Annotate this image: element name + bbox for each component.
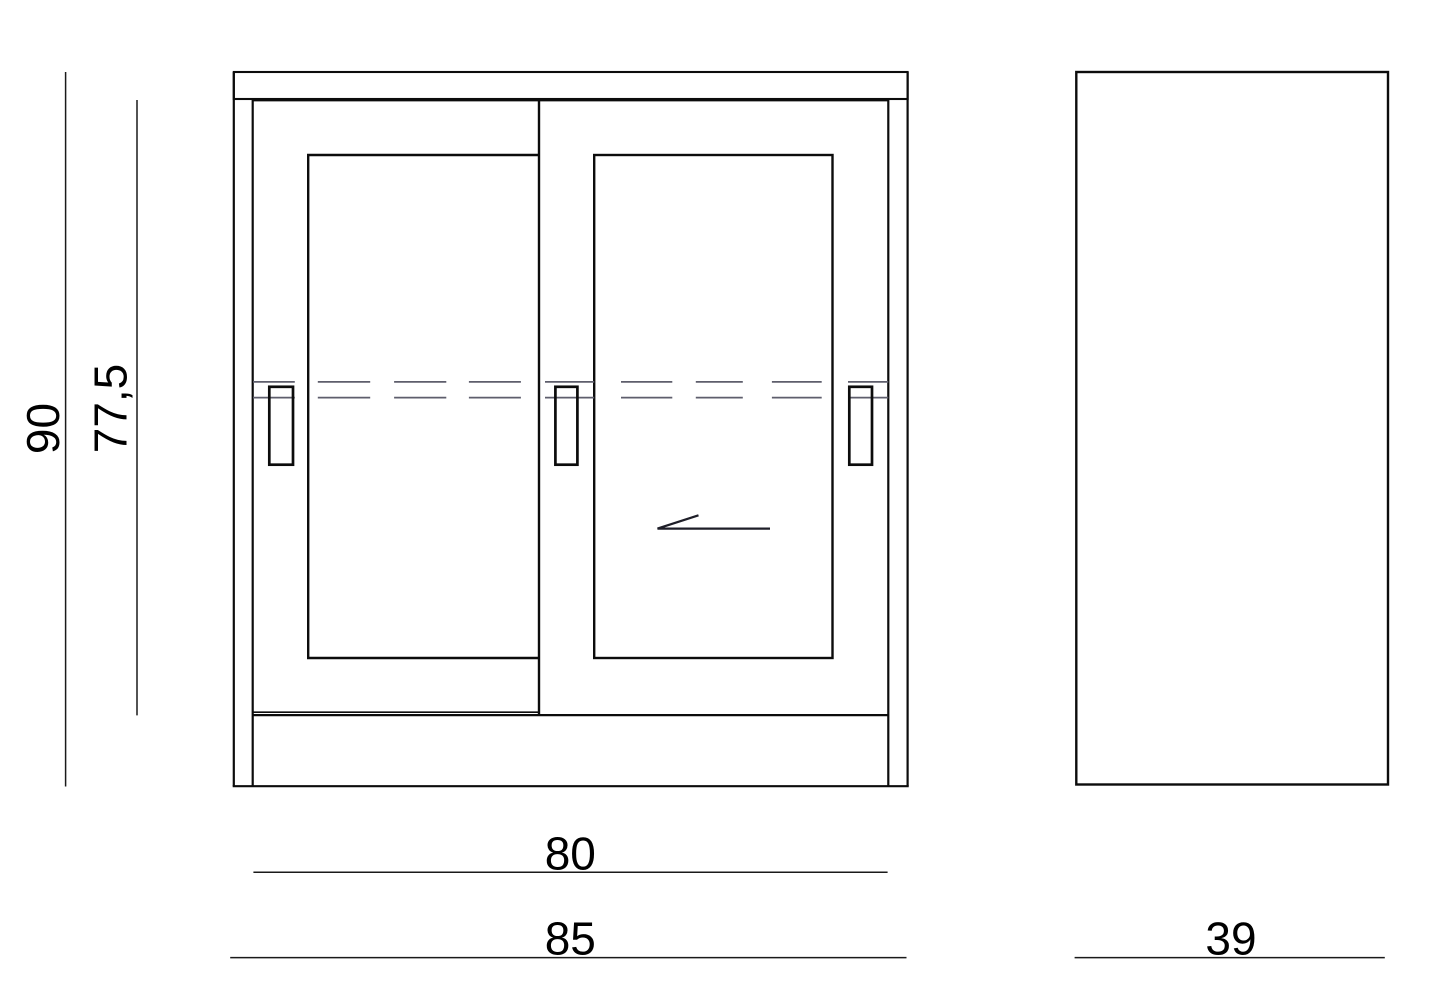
- svg-text:85: 85: [545, 913, 596, 965]
- svg-text:77,5: 77,5: [85, 364, 137, 454]
- svg-text:39: 39: [1205, 913, 1256, 965]
- svg-text:80: 80: [545, 828, 596, 880]
- svg-text:90: 90: [17, 403, 69, 454]
